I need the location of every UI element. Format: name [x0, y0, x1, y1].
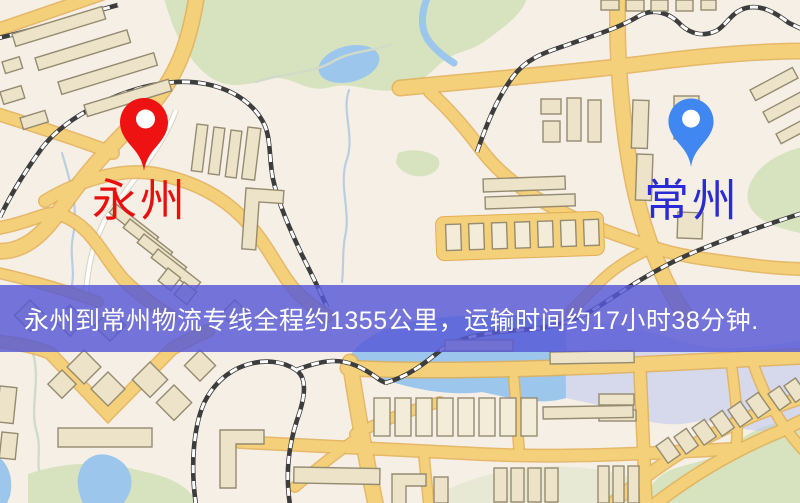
building-band [435, 211, 604, 261]
destination-city-label: 常州 [644, 178, 740, 223]
origin-city-label: 永州 [92, 178, 188, 223]
map-canvas [0, 0, 800, 503]
route-info-text: 永州到常州物流专线全程约1355公里，运输时间约17小时38分钟. [0, 301, 759, 337]
route-info-banner: 永州到常州物流专线全程约1355公里，运输时间约17小时38分钟. [0, 285, 800, 352]
map-screenshot: 永州 常州 永州到常州物流专线全程约1355公里，运输时间约17小时38分钟. [0, 0, 800, 503]
